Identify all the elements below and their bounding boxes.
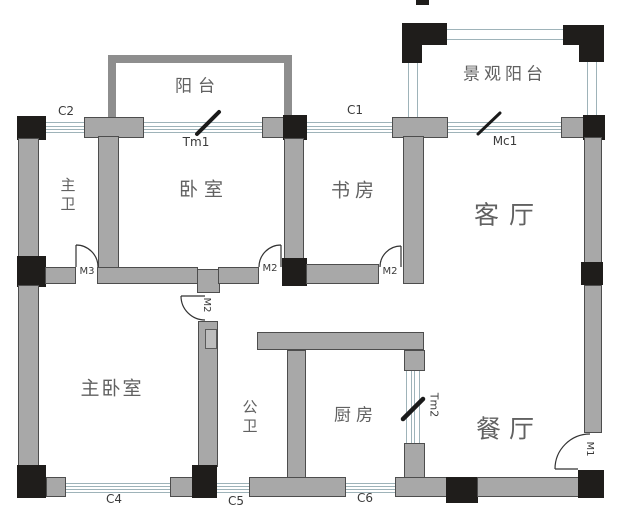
room-label-kitchen: 厨房 [334, 408, 378, 425]
room-label-balcony: 阳台 [175, 79, 221, 96]
floor-plan: 阳台 景观阳台 主卫 卧室 书房 客厅 主卧室 公卫 厨房 餐厅 C2 C1 T… [0, 0, 640, 521]
window-c2 [46, 122, 84, 133]
balcony-rail-right [284, 55, 292, 119]
wall-left-lower [18, 285, 39, 467]
column-bottom-right [578, 470, 604, 498]
tag-c5: C5 [228, 495, 244, 507]
tag-m3: M3 [80, 267, 95, 277]
wall-mid-a [45, 267, 76, 284]
window-c5 [217, 483, 250, 493]
tag-tm2: Tm2 [429, 393, 440, 417]
wall-kitchen-top [257, 332, 424, 350]
tag-tm1: Tm1 [183, 136, 210, 148]
tag-m2-public-bath: M2 [201, 298, 211, 313]
view-balcony-column-right-leg [579, 45, 604, 62]
window-tm1 [144, 122, 262, 133]
column-bottom-mid-left [192, 465, 217, 498]
balcony-rail-top [108, 55, 292, 63]
view-balcony-column-left-bar [402, 23, 447, 45]
wall-mid-d [306, 264, 379, 284]
room-label-view-balcony: 景观阳台 [463, 67, 547, 84]
tag-c6: C6 [357, 492, 373, 504]
view-balcony-window-right [587, 62, 597, 117]
wall-study-living [403, 136, 424, 284]
wall-kitchen-right-lower [404, 443, 425, 478]
wall-right-lower [584, 285, 602, 433]
tag-c1: C1 [347, 104, 363, 116]
column-bottom-mid-right [446, 477, 478, 503]
wall-mid-b [97, 267, 198, 284]
room-label-master-bedroom: 主卧室 [80, 380, 143, 399]
window-tm2-glass-door [406, 371, 420, 443]
door-arc-m2-study [380, 246, 401, 267]
tag-c2: C2 [58, 105, 74, 117]
wall-bottom-b [170, 477, 193, 497]
view-balcony-window-left [408, 63, 418, 117]
tag-mc1: Mc1 [493, 135, 518, 147]
column-bottom-left [17, 465, 46, 498]
wall-bottom-d [395, 477, 447, 497]
tag-m2-study: M2 [383, 267, 398, 277]
wall-bottom-a [46, 477, 66, 497]
window-c1 [307, 122, 392, 133]
room-label-dining-room: 餐厅 [476, 417, 542, 442]
wall-bottom-c [249, 477, 346, 497]
door-arc-m3 [76, 245, 98, 267]
tag-m2-bedroom: M2 [263, 264, 278, 274]
wall-top-c [392, 117, 448, 138]
wall-kitchen-right-upper [404, 350, 425, 371]
wall-mid-c [218, 267, 259, 284]
room-label-bedroom: 卧室 [179, 181, 229, 200]
top-edge-column-stub [416, 0, 429, 5]
column-center [282, 258, 307, 286]
wall-right-upper [584, 137, 602, 263]
balcony-rail-left [108, 55, 116, 119]
tag-c4: C4 [106, 493, 122, 505]
column-top-left [17, 116, 46, 140]
room-label-public-bath: 公卫 [242, 399, 257, 437]
wall-top-d [561, 117, 585, 138]
column-left-mid [17, 256, 46, 287]
tag-m1: M1 [584, 442, 594, 457]
view-balcony-window-top [447, 29, 563, 40]
wall-bottom-e [477, 477, 579, 497]
room-label-master-bath: 主卫 [60, 177, 75, 215]
column-top-mid [283, 115, 307, 140]
view-balcony-column-right-bar [563, 25, 604, 45]
column-right-mid [581, 262, 603, 285]
wall-notch [205, 329, 217, 349]
room-label-study: 书房 [331, 182, 379, 201]
room-label-living-room: 客厅 [474, 203, 544, 228]
wall-left-upper [18, 138, 39, 260]
window-mc1 [448, 122, 561, 133]
wall-masterbath-bedroom [98, 136, 119, 268]
view-balcony-column-left-leg [402, 45, 422, 63]
wall-top-a [84, 117, 144, 138]
wall-kitchen-left [287, 350, 306, 478]
wall-mid-jamb-block [197, 269, 220, 293]
wall-bedroom-study [284, 138, 304, 260]
